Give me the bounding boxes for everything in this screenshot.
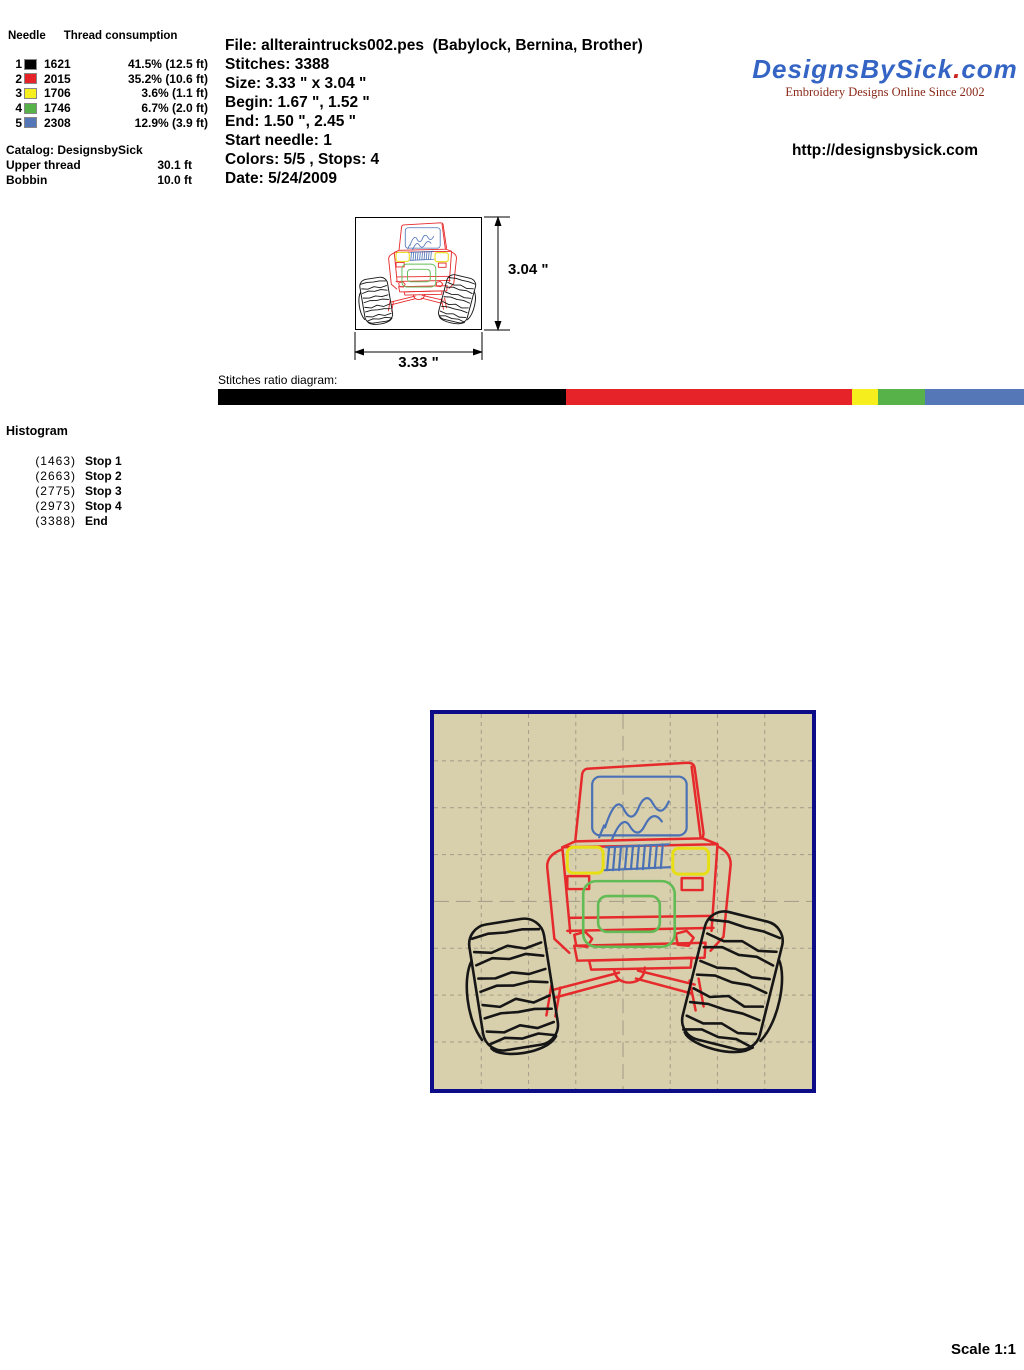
ratio-bar <box>218 389 1024 405</box>
needle-row: 2201535.2% (10.6 ft) <box>6 72 208 87</box>
needle-number: 1 <box>6 57 22 71</box>
histogram-title: Histogram <box>6 424 122 438</box>
needle-number: 5 <box>6 116 22 130</box>
upper-thread-value: 30.1 ft <box>157 158 192 173</box>
design-sheet: Needle Thread consumption 1162141.5% (12… <box>0 0 1024 1370</box>
needle-stitch-count: 1706 <box>44 86 86 100</box>
needle-consumption: 35.2% (10.6 ft) <box>86 72 208 86</box>
catalog-line: Catalog: DesignsbySick <box>6 143 208 158</box>
needle-column-header: Needle <box>8 30 46 42</box>
ratio-segment <box>852 389 879 405</box>
needle-consumption: 41.5% (12.5 ft) <box>86 57 208 71</box>
histogram-row: (2973)Stop 4 <box>28 499 122 514</box>
file-info-line: Start needle: 1 <box>225 131 643 150</box>
file-info-line: Date: 5/24/2009 <box>225 169 643 188</box>
needle-row: 317063.6% (1.1 ft) <box>6 86 208 101</box>
stop-stitch-count: (2663) <box>28 469 76 483</box>
ratio-segment <box>566 389 851 405</box>
file-info-line: End: 1.50 ", 2.45 " <box>225 112 643 131</box>
stop-stitch-count: (2775) <box>28 484 76 498</box>
file-info-block: File: allteraintrucks002.pes (Babylock, … <box>225 36 643 188</box>
needle-number: 3 <box>6 86 22 100</box>
ratio-segment <box>925 389 1024 405</box>
needle-consumption: 3.6% (1.1 ft) <box>86 86 208 100</box>
width-dimension-label: 3.33 " <box>355 354 482 371</box>
file-info-line: File: allteraintrucks002.pes (Babylock, … <box>225 36 643 55</box>
file-info-line: Begin: 1.67 ", 1.52 " <box>225 93 643 112</box>
brand-url: http://designsbysick.com <box>752 142 1018 160</box>
histogram-row: (1463)Stop 1 <box>28 454 122 469</box>
histogram-row: (2663)Stop 2 <box>28 469 122 484</box>
stop-label: Stop 2 <box>85 469 122 483</box>
thread-color-swatch <box>24 117 37 128</box>
needle-row: 417466.7% (2.0 ft) <box>6 101 208 116</box>
file-info-line: Size: 3.33 " x 3.04 " <box>225 74 643 93</box>
stop-label: End <box>85 514 108 528</box>
histogram-row: (2775)Stop 3 <box>28 484 122 499</box>
needle-stitch-count: 1621 <box>44 57 86 71</box>
stop-stitch-count: (2973) <box>28 499 76 513</box>
consumption-header: Needle Thread consumption <box>6 30 208 42</box>
bobbin-row: Bobbin 10.0 ft <box>6 173 192 188</box>
thread-color-swatch <box>24 88 37 99</box>
stop-label: Stop 4 <box>85 499 122 513</box>
needle-consumption: 6.7% (2.0 ft) <box>86 101 208 115</box>
ratio-segment <box>878 389 925 405</box>
stop-stitch-count: (1463) <box>28 454 76 468</box>
logo-tld: com <box>961 54 1017 84</box>
bobbin-value: 10.0 ft <box>157 173 192 188</box>
needle-number: 4 <box>6 101 22 115</box>
ratio-segment <box>218 389 566 405</box>
design-preview <box>430 710 816 1093</box>
brand-logo: DesignsBySick.com <box>752 54 1018 84</box>
upper-thread-row: Upper thread 30.1 ft <box>6 158 192 173</box>
scale-label: Scale 1:1 <box>951 1341 1016 1358</box>
needle-number: 2 <box>6 72 22 86</box>
upper-thread-label: Upper thread <box>6 158 81 173</box>
brand-block: DesignsBySick.com Embroidery Designs Onl… <box>752 54 1018 160</box>
brand-tagline: Embroidery Designs Online Since 2002 <box>752 85 1018 100</box>
histogram-rows: (1463)Stop 1(2663)Stop 2(2775)Stop 3(297… <box>28 454 122 529</box>
ratio-diagram-label: Stitches ratio diagram: <box>218 373 337 387</box>
thread-consumption-column-header: Thread consumption <box>64 30 178 42</box>
needle-stitch-count: 1746 <box>44 101 86 115</box>
thread-color-swatch <box>24 59 37 70</box>
bobbin-label: Bobbin <box>6 173 47 188</box>
needle-table-rows: 1162141.5% (12.5 ft)2201535.2% (10.6 ft)… <box>6 57 208 130</box>
thread-consumption-panel: Needle Thread consumption 1162141.5% (12… <box>6 30 208 188</box>
stop-label: Stop 1 <box>85 454 122 468</box>
preview-truck-drawing <box>434 714 812 1089</box>
file-info-line: Colors: 5/5 , Stops: 4 <box>225 150 643 169</box>
stop-stitch-count: (3388) <box>28 514 76 528</box>
thread-color-swatch <box>24 103 37 114</box>
logo-name: DesignsBySick <box>752 54 953 84</box>
file-info-line: Stitches: 3388 <box>225 55 643 74</box>
needle-consumption: 12.9% (3.9 ft) <box>86 116 208 130</box>
needle-row: 1162141.5% (12.5 ft) <box>6 57 208 72</box>
thread-color-swatch <box>24 73 37 84</box>
height-dimension-label: 3.04 " <box>508 261 548 278</box>
histogram-panel: Histogram (1463)Stop 1(2663)Stop 2(2775)… <box>6 424 122 529</box>
needle-row: 5230812.9% (3.9 ft) <box>6 115 208 130</box>
needle-stitch-count: 2015 <box>44 72 86 86</box>
histogram-row: (3388)End <box>28 514 122 529</box>
stop-label: Stop 3 <box>85 484 122 498</box>
needle-stitch-count: 2308 <box>44 116 86 130</box>
